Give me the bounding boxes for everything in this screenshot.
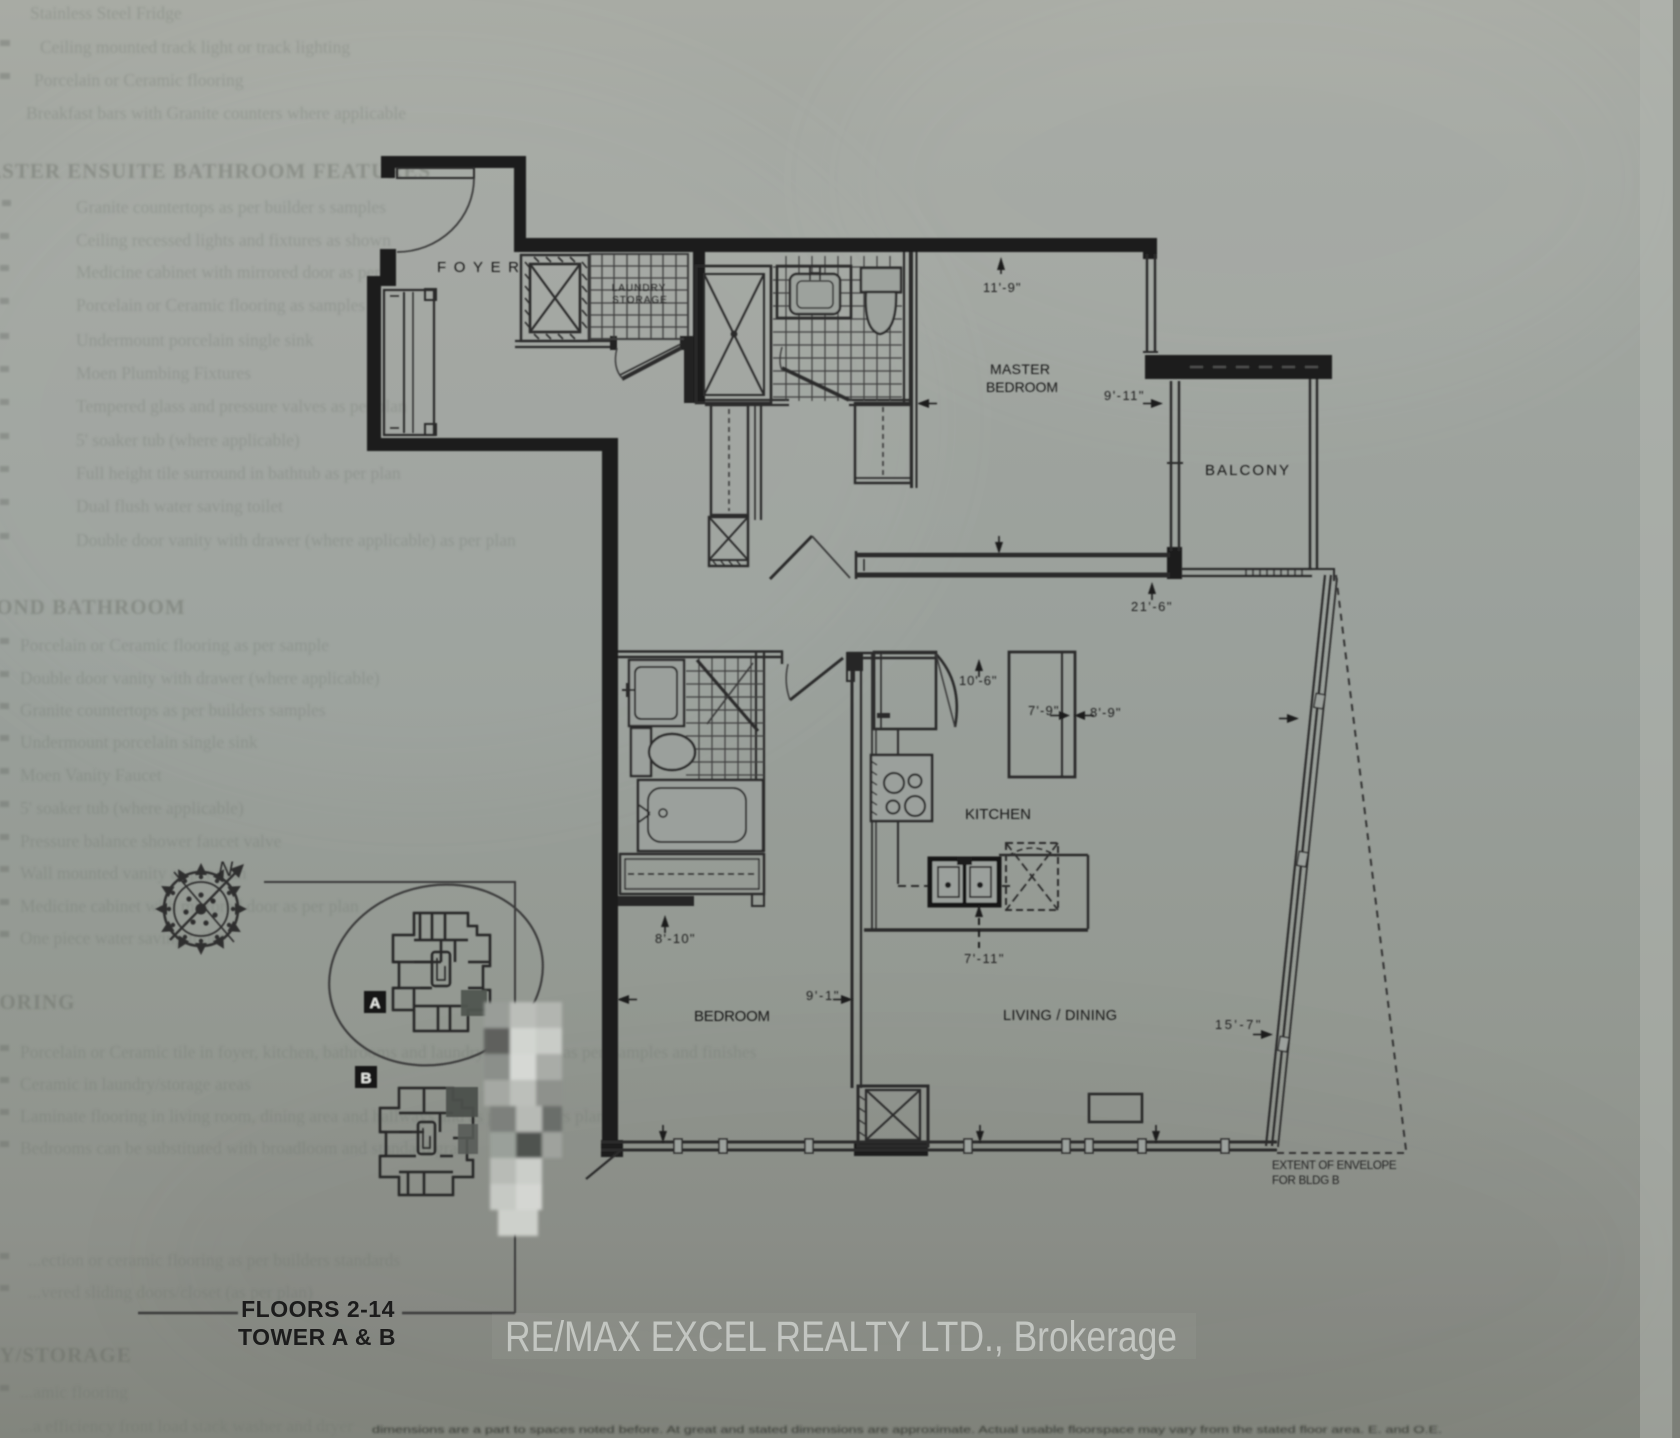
svg-text:COND BATHROOM: COND BATHROOM	[0, 595, 186, 619]
svg-text:Double door vanity with drawer: Double door vanity with drawer (where ap…	[20, 668, 380, 688]
svg-text:Stainless Steel Fridge: Stainless Steel Fridge	[30, 3, 182, 23]
svg-text:RY/STORAGE: RY/STORAGE	[0, 1343, 132, 1367]
svg-text:9'-11": 9'-11"	[1104, 388, 1144, 403]
svg-text:TOWER A & B: TOWER A & B	[238, 1324, 396, 1350]
svg-text:Undermount porcelain single si: Undermount porcelain single sink	[20, 732, 258, 752]
svg-text:ASTER ENSUITE BATHROOM FEATURE: ASTER ENSUITE BATHROOM FEATURES	[0, 159, 431, 183]
svg-text:...a efficiency front load sta: ...a efficiency front load stack washer …	[20, 1416, 353, 1436]
svg-text:FOR BLDG B: FOR BLDG B	[1272, 1175, 1340, 1187]
svg-text:Dual flush water saving toilet: Dual flush water saving toilet	[76, 496, 283, 516]
svg-text:11'-9": 11'-9"	[983, 280, 1021, 295]
svg-text:Porcelain or Ceramic flooring: Porcelain or Ceramic flooring	[34, 70, 244, 90]
svg-text:MASTER: MASTER	[990, 361, 1052, 377]
svg-text:EXTENT OF ENVELOPE: EXTENT OF ENVELOPE	[1272, 1160, 1397, 1172]
svg-text:Double door vanity with drawer: Double door vanity with drawer (where ap…	[76, 530, 516, 550]
svg-text:Ceramic in laundry/storage are: Ceramic in laundry/storage areas	[20, 1074, 251, 1094]
svg-text:Breakfast bars with Granite co: Breakfast bars with Granite counters whe…	[26, 103, 406, 123]
svg-text:Granite countertops as per bui: Granite countertops as per builders samp…	[20, 700, 326, 720]
svg-text:Ceiling mounted track light or: Ceiling mounted track light or track lig…	[40, 37, 350, 57]
svg-text:STORAGE: STORAGE	[612, 295, 668, 306]
svg-text:7'-11": 7'-11"	[964, 951, 1004, 966]
svg-text:LIVING / DINING: LIVING / DINING	[1003, 1008, 1119, 1024]
svg-text:RE/MAX EXCEL REALTY LTD., Brok: RE/MAX EXCEL REALTY LTD., Brokerage	[505, 1313, 1177, 1361]
svg-text:Porcelain or Ceramic flooring: Porcelain or Ceramic flooring as per sam…	[20, 635, 329, 655]
svg-text:LAUNDRY: LAUNDRY	[612, 283, 667, 294]
svg-text:A: A	[370, 995, 381, 1012]
svg-text:Granite countertops as per bui: Granite countertops as per builder s sam…	[76, 197, 386, 217]
svg-text:5' soaker tub (where applicabl: 5' soaker tub (where applicable)	[20, 798, 244, 818]
svg-text:BALCONY: BALCONY	[1205, 462, 1291, 479]
svg-text:KITCHEN: KITCHEN	[965, 806, 1033, 823]
svg-text:Porcelain or Ceramic flooring: Porcelain or Ceramic flooring as samples	[76, 295, 365, 315]
svg-text:Full height tile surround in b: Full height tile surround in bathtub as …	[76, 463, 401, 483]
svg-text:10'-6": 10'-6"	[959, 673, 997, 688]
svg-text:9'-1": 9'-1"	[806, 988, 839, 1003]
svg-text:BEDROOM: BEDROOM	[986, 379, 1060, 395]
svg-text:OORING: OORING	[0, 990, 76, 1014]
svg-text:5' soaker tub (where applicabl: 5' soaker tub (where applicable)	[76, 430, 300, 450]
svg-text:FLOORS 2-14: FLOORS 2-14	[241, 1296, 395, 1322]
svg-text:Moen Vanity Faucet: Moen Vanity Faucet	[20, 765, 162, 785]
svg-text:Medicine cabinet with mirrored: Medicine cabinet with mirrored door as p…	[76, 262, 380, 282]
svg-text:8'-9": 8'-9"	[1090, 705, 1121, 720]
svg-text:BEDROOM: BEDROOM	[694, 1008, 772, 1025]
svg-text:21'-6": 21'-6"	[1131, 599, 1172, 614]
svg-text:Undermount porcelain single si: Undermount porcelain single sink	[76, 330, 314, 350]
svg-text:8'-10": 8'-10"	[655, 931, 695, 946]
svg-text:N: N	[218, 858, 234, 881]
svg-text:Ceiling recessed lights and fi: Ceiling recessed lights and fixtures as …	[76, 230, 391, 250]
svg-text:...ection or ceramic flooring: ...ection or ceramic flooring as per bui…	[28, 1250, 400, 1270]
svg-text:Pressure balance shower faucet: Pressure balance shower faucet valve	[20, 831, 282, 851]
svg-text:Moen Plumbing Fixtures: Moen Plumbing Fixtures	[76, 363, 251, 383]
svg-text:...amic flooring: ...amic flooring	[20, 1382, 128, 1402]
svg-text:B: B	[361, 1070, 372, 1087]
svg-text:Tempered glass and pressure va: Tempered glass and pressure valves as pe…	[76, 396, 407, 416]
svg-text:dimensions are a part to space: dimensions are a part to spaces noted be…	[372, 1424, 1442, 1436]
